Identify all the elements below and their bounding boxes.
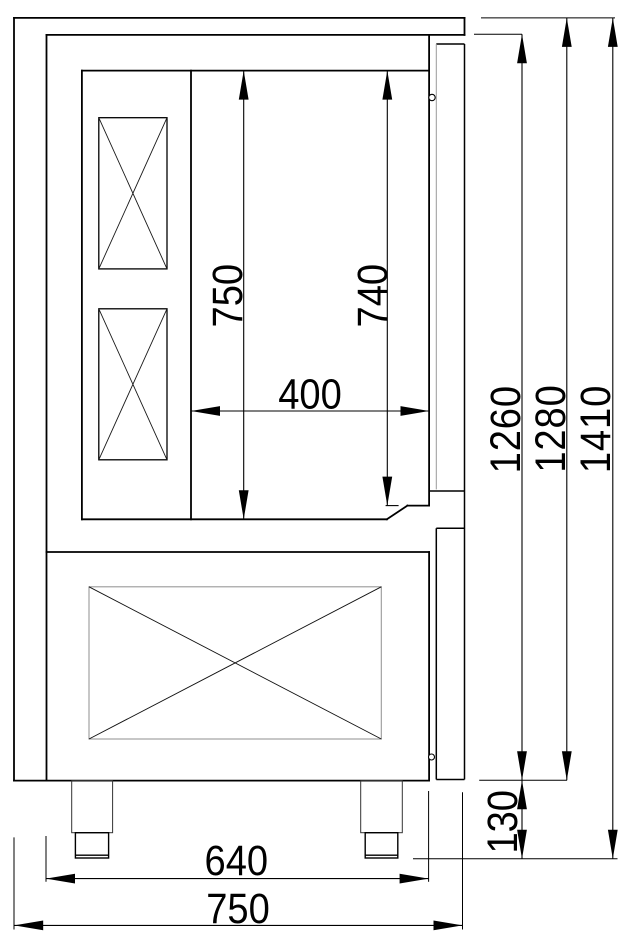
svg-text:750: 750 [203, 264, 252, 328]
svg-text:1260: 1260 [481, 385, 530, 473]
svg-text:640: 640 [205, 836, 269, 885]
svg-text:740: 740 [348, 264, 397, 328]
svg-text:1410: 1410 [571, 385, 620, 473]
svg-text:130: 130 [478, 790, 527, 854]
svg-text:1280: 1280 [526, 384, 575, 472]
svg-text:750: 750 [206, 884, 270, 933]
svg-text:400: 400 [278, 369, 342, 418]
